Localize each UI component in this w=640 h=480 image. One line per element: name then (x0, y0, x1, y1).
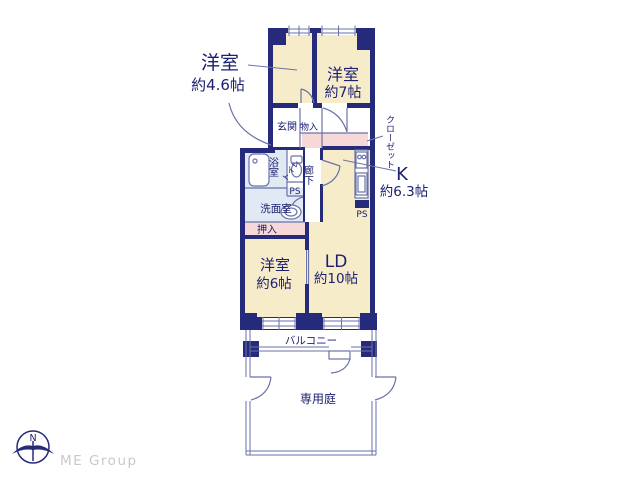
brand-logo-text: ME Group (60, 453, 138, 469)
window-living (323, 317, 360, 330)
pipe-space-1-label: PS (289, 187, 300, 197)
closet-floor (302, 133, 368, 148)
kitchen-size: 約6.3帖 (380, 184, 428, 200)
kitchen-counter-icon (355, 150, 368, 198)
pillar-bottom-left (240, 313, 257, 330)
living-label: LD (325, 252, 348, 272)
kitchen-label: K (396, 164, 409, 185)
window-bedroom-7 (321, 26, 356, 37)
closet-label: クローゼット (384, 115, 395, 169)
living-size: 約10帖 (314, 271, 358, 287)
balcony-label: バルコニー (285, 335, 337, 347)
bath-label: 浴室 (267, 157, 279, 177)
garden-gate-left-arc (250, 377, 271, 400)
bedroom-6-label: 洋室 (260, 256, 290, 274)
storage-label: 物入 (300, 121, 318, 133)
window-bedroom-6 (262, 317, 296, 330)
garden-gate-right-arc (375, 377, 396, 400)
washroom-label: 洗面室 (260, 202, 292, 215)
balcony-garden-door (329, 351, 350, 373)
bedroom-46-size: 約4.6帖 (191, 76, 245, 94)
bedroom-46-label: 洋室 (201, 52, 239, 74)
entrance-label: 玄関 (277, 120, 297, 133)
pillar-bottom-middle (296, 313, 322, 330)
window-bedroom-46 (288, 26, 310, 37)
compass-icon: N (12, 431, 54, 463)
hallway-label: 廊下 (302, 164, 314, 186)
private-garden-label: 専用庭 (300, 391, 336, 406)
balcony-pillar-right (361, 341, 377, 357)
floor-plan-image: 洋室 約4.6帖 洋室 約7帖 玄関 物入 K 約6.3帖 PS 洗面室 押入 … (0, 0, 640, 480)
hallway-floor (305, 148, 320, 222)
kitchen-duct-block (355, 200, 369, 208)
floor-plan-canvas: 洋室 約4.6帖 洋室 約7帖 玄関 物入 K 約6.3帖 PS 洗面室 押入 … (0, 0, 640, 480)
futon-closet-label: 押入 (257, 223, 277, 236)
bedroom-7-label: 洋室 (327, 65, 359, 84)
garden-fence (246, 357, 376, 455)
entrance-door-arc (229, 103, 271, 145)
pipe-space-2-label: PS (356, 210, 367, 220)
bedroom-6-size: 約6帖 (256, 276, 292, 292)
pillar-bottom-right (360, 313, 377, 330)
balcony-pillar-left (243, 341, 259, 357)
bedroom-7-size: 約7帖 (325, 85, 362, 101)
